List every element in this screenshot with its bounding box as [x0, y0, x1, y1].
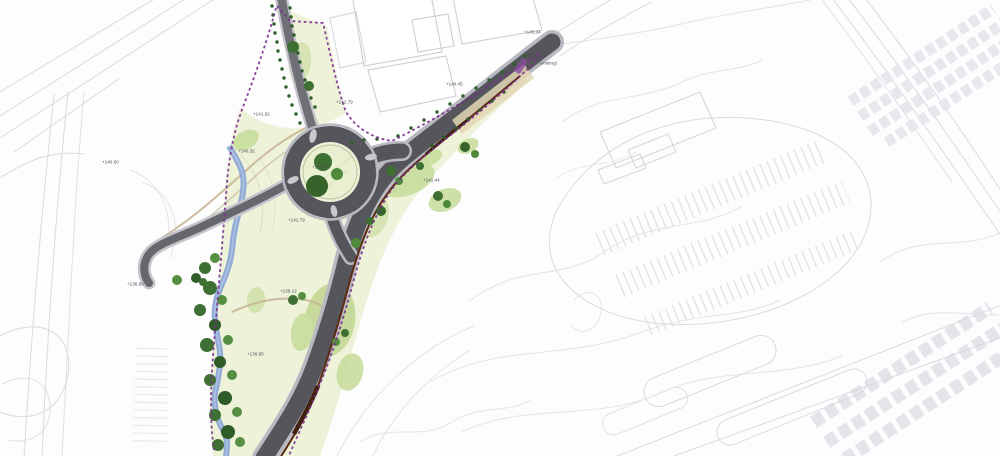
site-plan-image: +145.04 +140.04 (tie in with existing) +… — [0, 0, 1000, 456]
grass-main-park — [210, 58, 540, 456]
site-plan-drawing — [0, 0, 1000, 456]
